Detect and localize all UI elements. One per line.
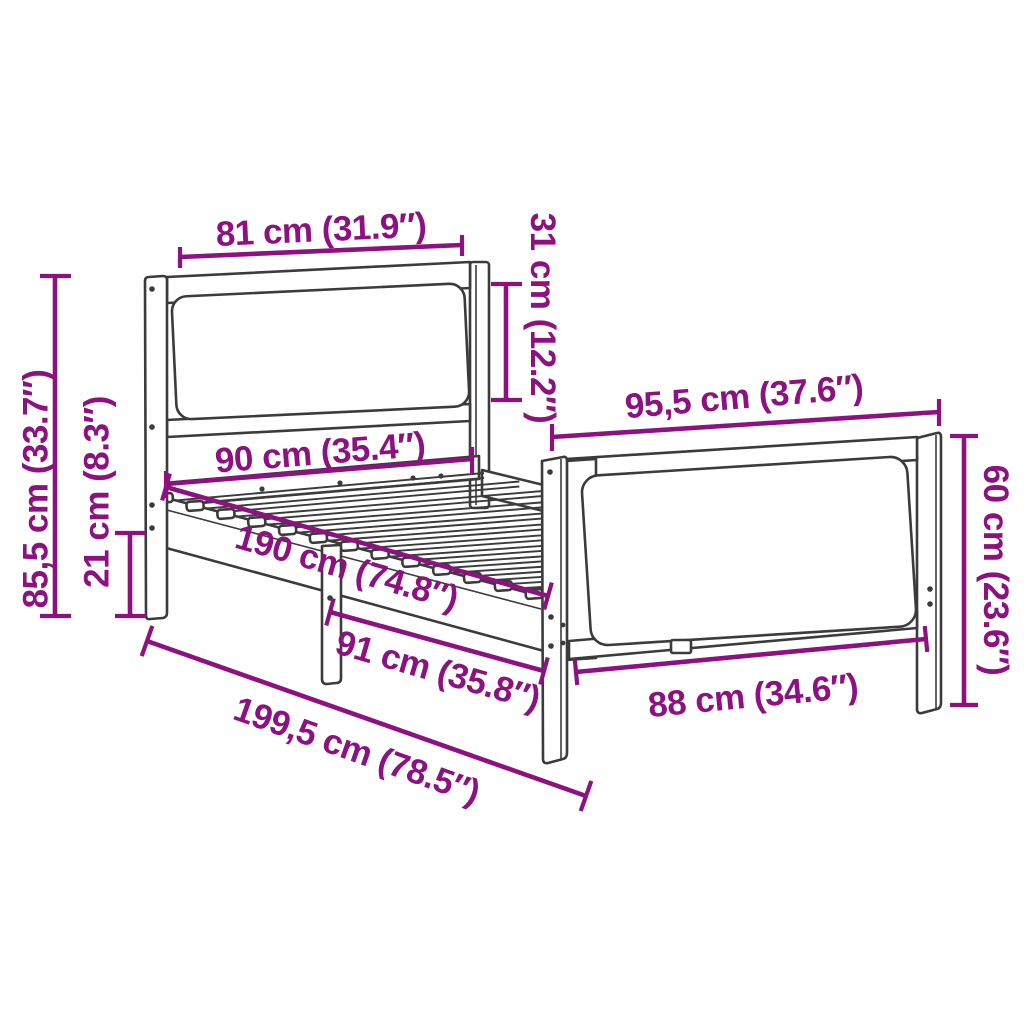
dimension-clearance-height: 21 cm (8.3″)	[77, 396, 146, 616]
slat-end	[217, 509, 235, 519]
dimension-clearance-height-label: 21 cm (8.3″)	[77, 396, 116, 588]
footboard-bracket	[671, 640, 691, 653]
dimension-footboard-inner-width-label: 88 cm (34.6″)	[646, 666, 859, 725]
dimension-headboard-total-height: 85,5 cm (33.7″)	[16, 276, 71, 616]
slat-end	[186, 501, 204, 511]
dimension-headboard-width: 81 cm (31.9″)	[180, 205, 462, 268]
headboard-left-post	[145, 276, 167, 619]
footboard-near-post	[542, 457, 567, 763]
bed-frame-dimension-diagram: 81 cm (31.9″) 31 cm (12.2″) 85,5 cm (33.…	[0, 0, 1024, 1024]
headboard-cushion	[171, 283, 469, 420]
diagram-canvas: 81 cm (31.9″) 31 cm (12.2″) 85,5 cm (33.…	[0, 0, 1024, 1024]
dimension-footboard-height: 60 cm (23.6″)	[950, 436, 1015, 705]
dimension-headboard-total-height-label: 85,5 cm (33.7″)	[16, 370, 55, 609]
dimension-footboard-height-label: 60 cm (23.6″)	[976, 465, 1015, 676]
dimension-total-length-label: 199,5 cm (78.5″)	[229, 689, 485, 812]
footboard-cushion	[581, 456, 917, 646]
dimension-headboard-panel-height: 31 cm (12.2″)	[491, 213, 562, 424]
dimension-headboard-panel-height-label: 31 cm (12.2″)	[523, 213, 562, 424]
footboard-far-post	[917, 433, 941, 713]
